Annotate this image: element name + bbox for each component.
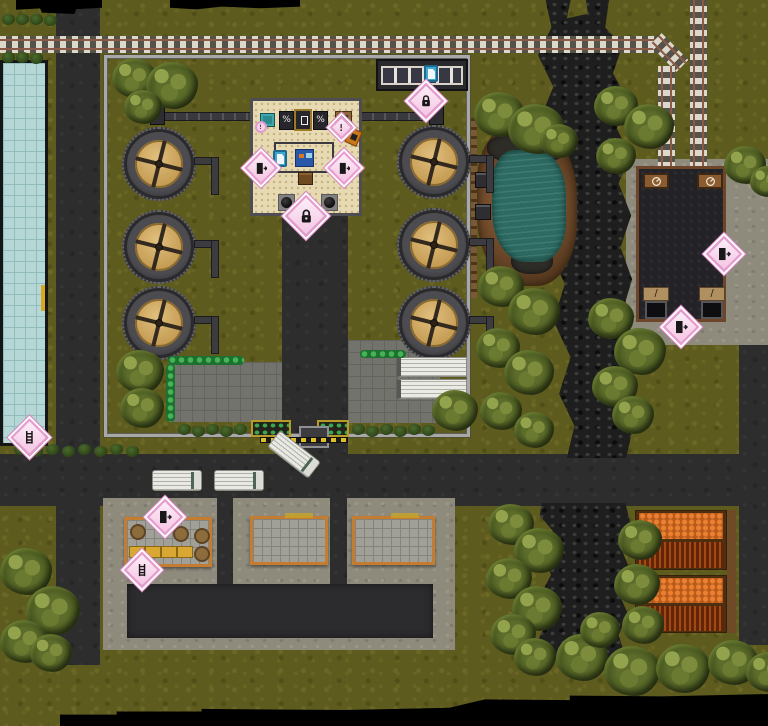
field-path — [727, 510, 736, 633]
tree — [504, 350, 554, 395]
tree — [656, 644, 710, 693]
tree — [120, 388, 164, 428]
exit-door-icon — [717, 247, 731, 261]
tank-pipe — [211, 240, 219, 278]
lock-icon — [419, 94, 433, 108]
hedge-row — [360, 350, 406, 358]
document-icon — [277, 154, 284, 164]
loading-platform-2 — [250, 516, 328, 565]
exit-door-icon — [674, 320, 688, 334]
marker-icon-wrap — [334, 158, 354, 178]
storage-tank — [122, 127, 196, 201]
ladder-icon — [135, 563, 149, 577]
railroad-horizontal — [0, 36, 664, 53]
gauge-machine: % — [279, 111, 294, 130]
cable-spool — [194, 546, 210, 562]
box-truck — [152, 470, 202, 491]
lock-icon — [298, 208, 315, 225]
gauge-machine: % — [313, 111, 328, 130]
pool-ladder-icon — [41, 285, 45, 311]
pipe-west — [163, 112, 251, 121]
tree — [622, 606, 664, 644]
barrel-stand — [321, 194, 338, 211]
storage-tank — [122, 210, 196, 284]
tree — [612, 396, 654, 434]
marker-icon-wrap — [335, 121, 348, 134]
exit-door-icon — [158, 510, 172, 524]
marker-icon-wrap — [293, 203, 319, 229]
dock-gap-1 — [217, 498, 233, 586]
swimming-pool — [0, 60, 48, 446]
bush — [16, 14, 29, 25]
tool-bench: / — [643, 287, 669, 301]
cable-spool — [130, 524, 146, 540]
exit-door-icon — [338, 162, 351, 175]
tree — [514, 638, 556, 676]
loading-platform-3 — [352, 516, 435, 565]
document-icon — [428, 69, 435, 79]
marker-icon-wrap — [713, 243, 735, 265]
truck-cab — [191, 472, 201, 489]
game-map: % % — [0, 0, 768, 726]
map-void-bottom — [60, 688, 768, 726]
pallet-mark — [391, 513, 419, 518]
dispenser-machine — [294, 109, 312, 131]
tree — [116, 350, 164, 393]
hedge-column — [166, 364, 175, 422]
tree — [124, 90, 162, 124]
tree — [624, 104, 674, 149]
marker-icon-wrap — [257, 123, 265, 131]
tree — [432, 390, 478, 431]
furnace — [697, 173, 723, 189]
tank-pipe — [211, 316, 219, 354]
supply-crate — [298, 172, 313, 185]
marker-icon-wrap — [251, 158, 271, 178]
tree — [540, 124, 578, 158]
tool-bench: / — [699, 287, 725, 301]
tree — [618, 520, 662, 560]
marker-icon-wrap — [670, 316, 692, 338]
tank-pipe — [211, 157, 219, 195]
tree — [580, 612, 620, 648]
forklift-seat — [350, 133, 358, 141]
storage-pit — [701, 301, 723, 319]
storage-tank — [397, 208, 471, 282]
tree — [30, 634, 72, 672]
cable-spool — [194, 528, 210, 544]
truck-cab — [253, 472, 263, 489]
ladder-icon — [22, 430, 37, 445]
box-truck — [214, 470, 264, 491]
tree — [604, 646, 660, 696]
bush — [2, 14, 15, 25]
hedge-row — [168, 356, 244, 365]
storage-tank — [122, 286, 196, 360]
cable-spool — [173, 526, 189, 542]
road-vertical-west — [56, 8, 100, 458]
office-round-badge[interactable] — [255, 121, 267, 133]
alert-icon — [258, 124, 263, 129]
pallet-mark — [285, 513, 313, 518]
marker-icon-wrap — [18, 426, 41, 449]
terminal-screen — [306, 153, 312, 158]
marker-icon-wrap — [154, 506, 176, 528]
marker-icon-wrap — [131, 559, 153, 581]
furnace — [643, 173, 669, 189]
terminal-chip — [299, 154, 304, 158]
canister-icon — [301, 116, 308, 125]
barrel — [281, 197, 292, 208]
map-void-top-mid — [170, 0, 300, 11]
marker-icon-wrap — [415, 90, 437, 112]
exit-door-icon — [255, 162, 268, 175]
shed-document-sign[interactable] — [424, 65, 438, 82]
dock-gap-2 — [330, 498, 347, 586]
tree — [514, 412, 554, 448]
barrel — [324, 197, 335, 208]
storage-tank — [397, 125, 471, 199]
trailer — [397, 357, 467, 377]
storage-pit — [645, 301, 667, 319]
tree — [508, 288, 560, 335]
dock-asphalt-yard — [127, 584, 433, 638]
tree — [614, 564, 660, 605]
pond-pump — [475, 204, 491, 220]
dial-icon — [651, 176, 662, 187]
dial-icon — [705, 176, 716, 187]
railroad-vertical-2 — [690, 0, 707, 168]
bush — [30, 14, 43, 25]
tree — [596, 138, 636, 174]
alert-icon — [337, 123, 345, 131]
tank-pipe — [486, 155, 494, 193]
pond-water — [492, 150, 566, 262]
shed-windows — [381, 66, 463, 85]
storage-tank — [397, 286, 471, 360]
road-east-strip — [739, 345, 768, 645]
computer-terminal — [295, 149, 314, 167]
